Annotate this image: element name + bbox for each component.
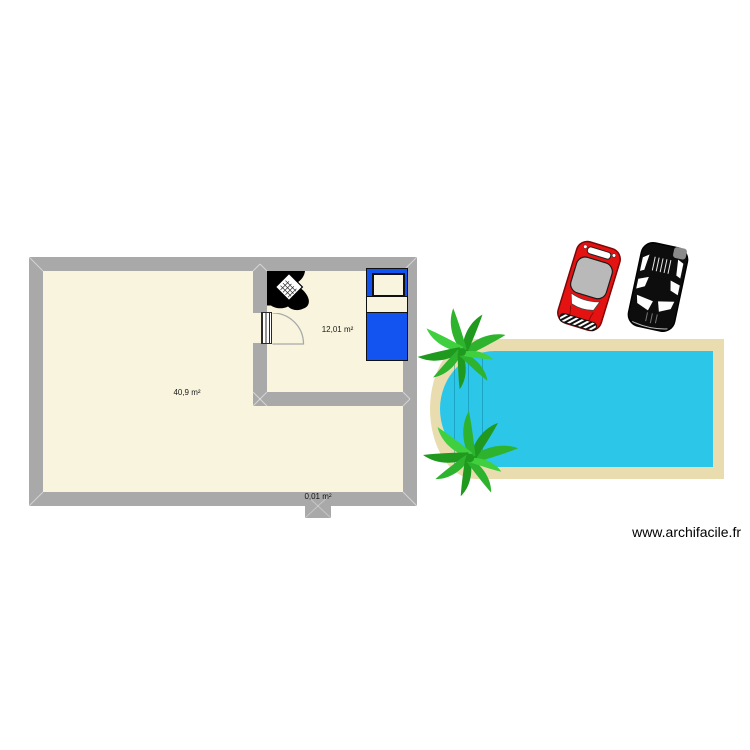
- wall-left[interactable]: [29, 271, 43, 492]
- wall-divider-horizontal[interactable]: [253, 392, 403, 406]
- floorplan-canvas: 40,9 m² 12,01 m² 0,01 m²: [0, 0, 750, 750]
- bed-pillow: [372, 273, 405, 297]
- room-label-living: 40,9 m²: [140, 388, 234, 398]
- wall-bottom[interactable]: [29, 492, 417, 506]
- desk-icon[interactable]: [267, 271, 313, 313]
- wall-top[interactable]: [29, 257, 417, 271]
- room-label-bedroom: 12,01 m²: [300, 325, 375, 335]
- palm-tree-top[interactable]: [414, 304, 510, 400]
- door[interactable]: [261, 312, 272, 344]
- bed-sheet-band: [366, 296, 408, 313]
- black-car[interactable]: [624, 239, 691, 335]
- room-living-floor[interactable]: [43, 271, 403, 492]
- bed[interactable]: [366, 268, 408, 361]
- red-car[interactable]: [553, 237, 625, 335]
- watermark: www.archifacile.fr: [632, 524, 741, 540]
- palm-tree-bottom[interactable]: [422, 410, 518, 506]
- room-label-stub: 0,01 m²: [291, 492, 345, 502]
- wall-divider-vertical-upper[interactable]: [253, 271, 267, 313]
